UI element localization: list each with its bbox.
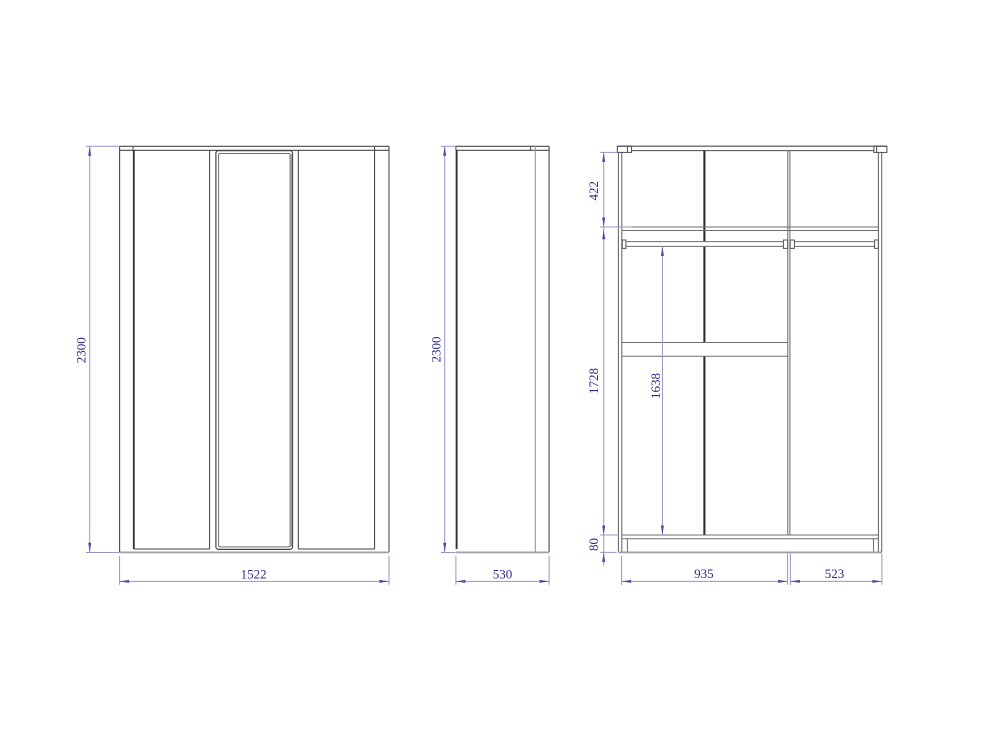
svg-text:530: 530	[493, 566, 513, 581]
svg-text:2300: 2300	[73, 337, 88, 363]
svg-text:2300: 2300	[428, 337, 443, 363]
svg-text:80: 80	[586, 538, 601, 551]
svg-text:1638: 1638	[648, 373, 663, 399]
svg-text:1728: 1728	[586, 368, 601, 394]
svg-text:422: 422	[586, 181, 601, 201]
svg-text:523: 523	[825, 566, 845, 581]
svg-text:1522: 1522	[241, 566, 267, 581]
svg-text:935: 935	[694, 566, 714, 581]
